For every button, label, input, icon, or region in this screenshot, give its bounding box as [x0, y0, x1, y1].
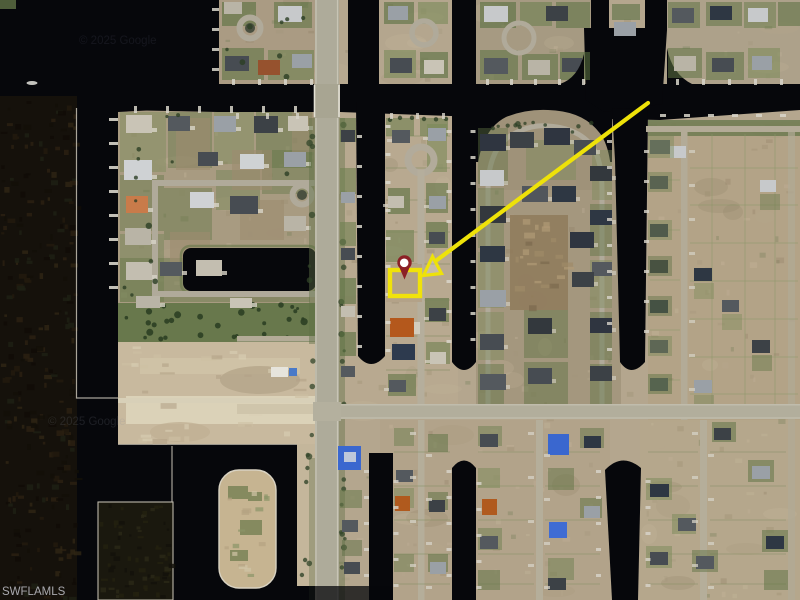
svg-text:© 2025 Google: © 2025 Google [79, 35, 157, 47]
svg-text:© 2025 Google: © 2025 Google [48, 416, 126, 428]
svg-text:SWFLAMLS: SWFLAMLS [2, 586, 66, 598]
